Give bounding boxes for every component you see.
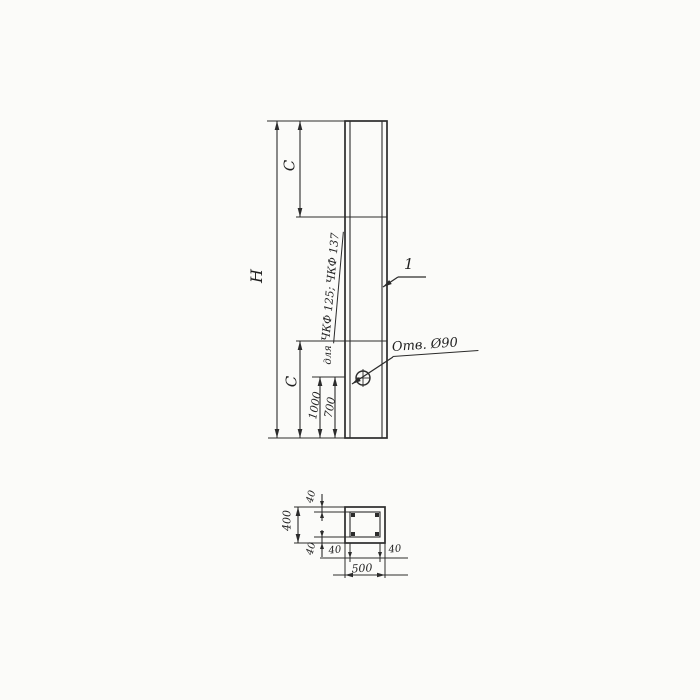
hole-circle [356, 369, 370, 387]
note-for-label: для [324, 341, 334, 369]
drawing-linework [0, 0, 700, 700]
section-dim-500: 500 [346, 562, 379, 575]
dim-label-C-top: C [283, 154, 298, 178]
section-outline [345, 507, 385, 543]
blueprint-canvas: H C C 1000 700 для ЧКФ 125; ЧКФ 137 Отв.… [0, 0, 700, 700]
part-ref-label: 1 [404, 257, 414, 272]
dim-label-C-bottom: C [285, 370, 300, 394]
elevation-column-outline [345, 121, 387, 438]
part-leader-line [383, 277, 426, 287]
section-dim-400: 400 [282, 504, 293, 538]
dim-label-H: H [249, 263, 265, 289]
section-rebar-dots [351, 513, 379, 536]
